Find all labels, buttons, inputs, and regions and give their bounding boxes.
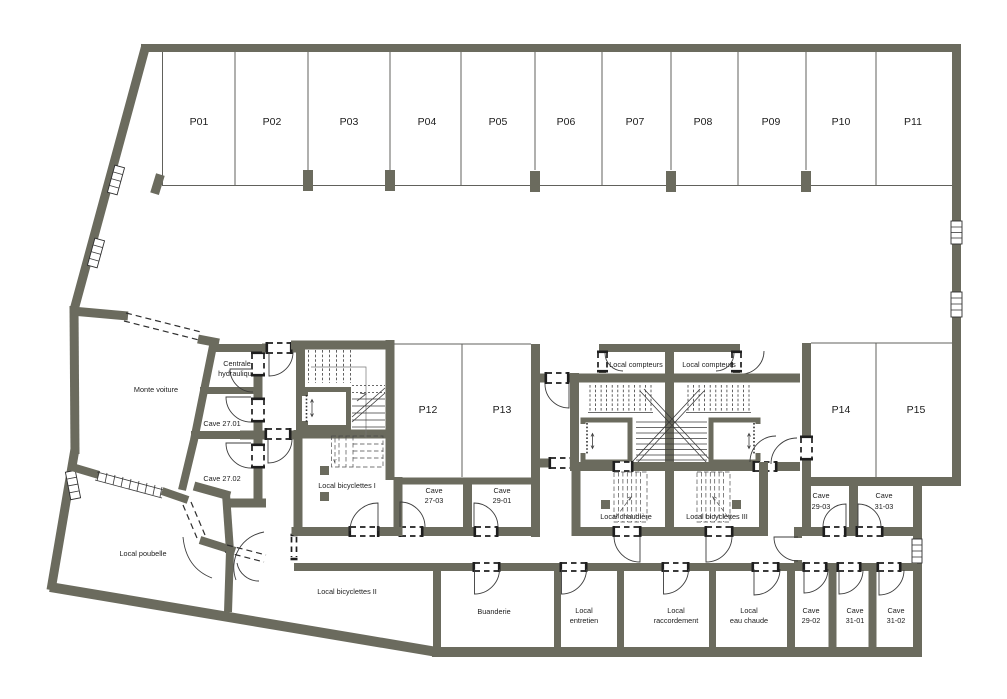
svg-text:eau chaude: eau chaude <box>730 616 768 625</box>
svg-text:Local compteurs: Local compteurs <box>609 360 663 369</box>
svg-text:P04: P04 <box>418 116 437 128</box>
svg-text:hydraulique: hydraulique <box>218 369 256 378</box>
svg-text:29-01: 29-01 <box>493 496 512 505</box>
svg-text:Local chaudière: Local chaudière <box>600 512 652 521</box>
svg-text:Local compteurs: Local compteurs <box>682 360 736 369</box>
svg-text:Cave: Cave <box>493 486 510 495</box>
svg-text:29-02: 29-02 <box>802 616 821 625</box>
svg-text:P06: P06 <box>557 116 576 128</box>
svg-text:raccordement: raccordement <box>654 616 699 625</box>
svg-text:Local poubelle: Local poubelle <box>119 549 166 558</box>
svg-text:Cave: Cave <box>802 606 819 615</box>
svg-text:P05: P05 <box>489 116 508 128</box>
svg-text:Cave 27.02: Cave 27.02 <box>203 474 240 483</box>
svg-text:Cave: Cave <box>812 491 829 500</box>
svg-text:Local: Local <box>740 606 758 615</box>
svg-text:Local bicyclettes III: Local bicyclettes III <box>686 512 748 521</box>
svg-text:P10: P10 <box>832 116 851 128</box>
svg-text:Buanderie: Buanderie <box>477 607 510 616</box>
svg-text:P07: P07 <box>626 116 645 128</box>
svg-text:Monte voiture: Monte voiture <box>134 385 178 394</box>
svg-text:P02: P02 <box>263 116 282 128</box>
svg-text:31-02: 31-02 <box>887 616 906 625</box>
svg-text:Cave: Cave <box>846 606 863 615</box>
svg-text:P03: P03 <box>340 116 359 128</box>
svg-text:Centrale: Centrale <box>223 359 251 368</box>
svg-text:Local bicyclettes II: Local bicyclettes II <box>317 587 377 596</box>
svg-text:P15: P15 <box>907 404 926 416</box>
svg-text:P12: P12 <box>419 404 438 416</box>
svg-text:Local bicyclettes I: Local bicyclettes I <box>318 481 376 490</box>
svg-text:P08: P08 <box>694 116 713 128</box>
svg-text:P09: P09 <box>762 116 781 128</box>
svg-text:P14: P14 <box>832 404 851 416</box>
svg-text:Local: Local <box>575 606 593 615</box>
svg-text:entretien: entretien <box>570 616 598 625</box>
svg-text:27-03: 27-03 <box>425 496 444 505</box>
svg-text:Cave 27.01: Cave 27.01 <box>203 419 240 428</box>
svg-text:Local: Local <box>667 606 685 615</box>
svg-text:Cave: Cave <box>425 486 442 495</box>
svg-text:P13: P13 <box>493 404 512 416</box>
svg-text:31-01: 31-01 <box>846 616 865 625</box>
svg-text:Cave: Cave <box>875 491 892 500</box>
svg-text:31-03: 31-03 <box>875 502 894 511</box>
svg-text:P01: P01 <box>190 116 209 128</box>
svg-text:P11: P11 <box>904 116 922 128</box>
svg-text:29-03: 29-03 <box>812 502 831 511</box>
svg-text:Cave: Cave <box>887 606 904 615</box>
